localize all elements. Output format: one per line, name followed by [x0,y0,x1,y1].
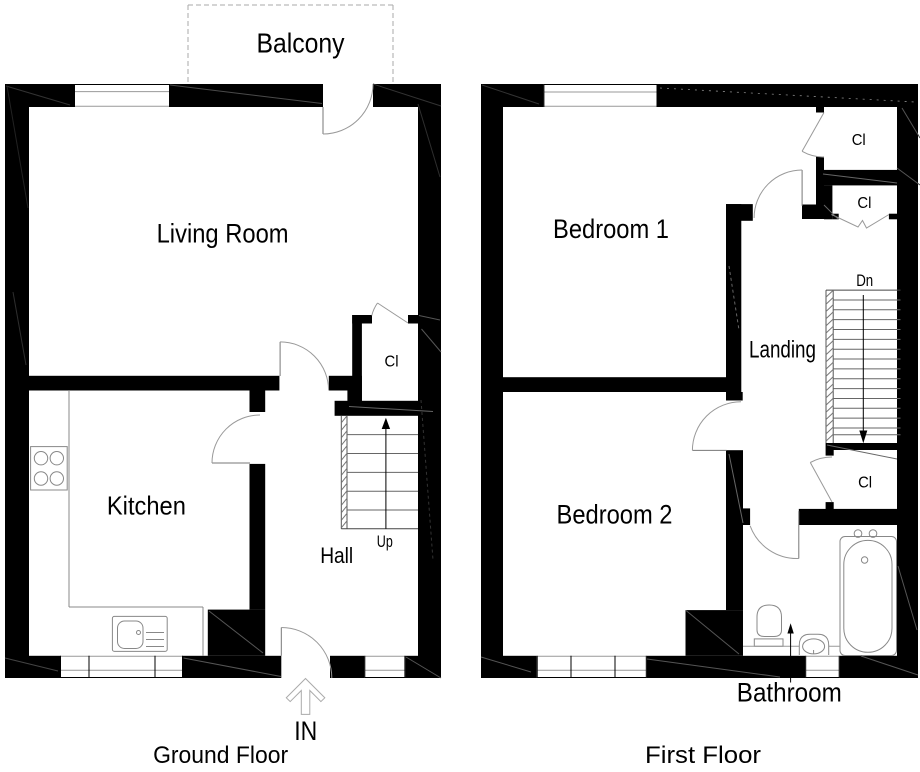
svg-text:Cl: Cl [857,195,871,212]
svg-text:IN: IN [294,716,317,746]
svg-text:Living Room: Living Room [157,218,289,248]
svg-text:Bathroom: Bathroom [737,678,842,708]
svg-text:Cl: Cl [858,475,872,492]
svg-text:Ground Floor: Ground Floor [153,742,288,767]
svg-text:Kitchen: Kitchen [107,491,186,521]
svg-text:Balcony: Balcony [257,28,345,59]
svg-text:Bedroom 1: Bedroom 1 [553,214,669,244]
svg-text:First Floor: First Floor [645,742,761,767]
svg-text:Bedroom 2: Bedroom 2 [557,500,673,530]
svg-text:Hall: Hall [320,543,353,568]
svg-text:Up: Up [377,532,393,551]
svg-text:Cl: Cl [385,353,399,370]
svg-text:Landing: Landing [749,336,816,363]
svg-text:Dn: Dn [856,271,873,290]
svg-text:Cl: Cl [852,132,866,149]
